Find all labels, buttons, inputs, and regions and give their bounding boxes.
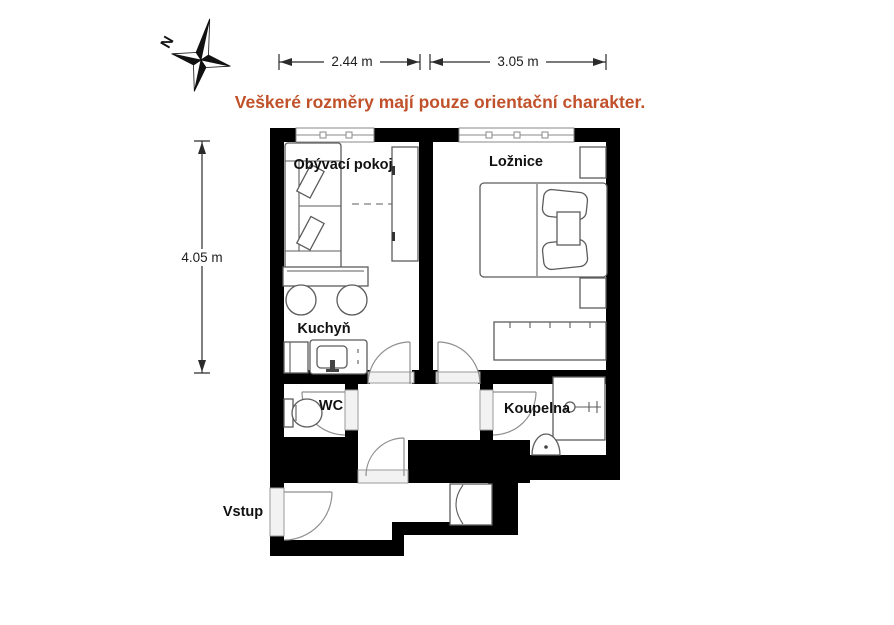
room-label-bathroom: Koupelna [504,401,571,417]
wall-mass-below-wc [270,437,358,483]
wc-fixtures [284,399,322,427]
dimension-label-plan-height: 4.05 m [181,250,222,265]
floorplan-canvas: N 2.44 m 3.05 m 4.05 m [0,0,894,625]
room-label-bedroom: Ložnice [489,154,543,170]
dimension-bedroom-width: 3.05 m [430,52,606,70]
kitchen-sink-counter [310,340,367,374]
entry-wardrobe [450,484,492,525]
wall-right [606,128,620,480]
dining-table [283,267,368,286]
bedroom-furniture [480,147,607,360]
room-label-entrance: Vstup [223,504,263,520]
wall-mid-center [412,370,438,384]
entrance-furniture [450,484,492,525]
entrance-door [270,488,332,540]
chair-left [286,285,316,315]
room-label-wc: WC [319,398,344,414]
window-bedroom [459,128,574,142]
bedroom-wardrobe [494,322,606,360]
wall-entry-bottom-left [270,540,404,556]
dimension-plan-height: 4.05 m [176,141,228,373]
room-label-kitchen: Kuchyň [297,321,350,337]
bedroom-door [436,342,480,384]
room-label-living: Obývací pokoj [293,157,392,173]
wall-bath-west-bottom-stub [480,430,493,440]
toilet [284,399,322,427]
kitchen-appliance [284,342,308,373]
hall-entrance-door [358,438,408,483]
chair-right [337,285,367,315]
dimension-label-living-width: 2.44 m [331,54,372,69]
compass-rose: N [157,19,230,91]
window-living-room [296,128,374,142]
compass-star-icon [172,19,231,91]
floorplan-drawing: N 2.44 m 3.05 m 4.05 m [0,0,894,625]
wall-bath-west-top-stub [480,384,493,390]
nightstand-bottom [580,278,606,308]
wall-divider-living-bedroom [419,142,433,384]
wall-left [270,128,284,488]
nightstand-top [580,147,606,178]
dimension-label-bedroom-width: 3.05 m [497,54,538,69]
dimension-living-width: 2.44 m [279,52,420,70]
compass-north-label: N [157,33,177,51]
double-bed [480,183,607,277]
kitchen-door [368,342,414,384]
kitchen-furniture [284,340,367,374]
wall-wc-east-top-stub [345,384,358,390]
living-room-shelf [392,147,418,261]
disclaimer-text: Veškeré rozměry mají pouze orientační ch… [235,92,645,112]
